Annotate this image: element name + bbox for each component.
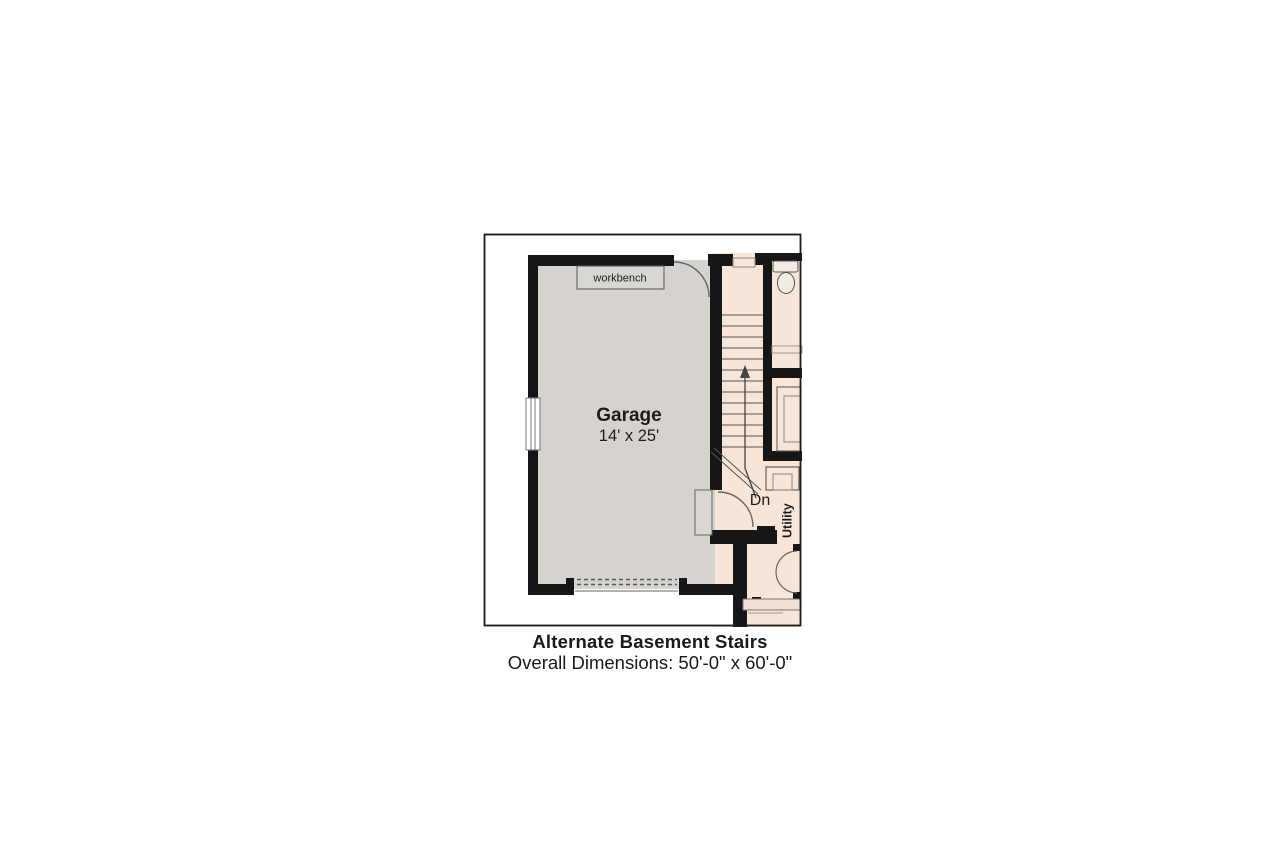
utility-label: Utility [781, 503, 795, 538]
wall-stair-right [763, 253, 772, 461]
wall-room-bottom [763, 451, 802, 461]
wall-left-upper [528, 255, 538, 398]
wall-bath-top [772, 253, 802, 261]
wall-hall-jog [710, 530, 777, 544]
exterior-patch [710, 595, 733, 626]
floor-plan: workbench [483, 233, 804, 628]
door-casing-garage [695, 490, 712, 535]
workbench-label: workbench [592, 273, 646, 285]
wall-top [528, 255, 674, 266]
wall-bottom-right [684, 584, 733, 595]
garage-door-jamb-right [679, 578, 687, 595]
page: workbench [0, 0, 1280, 853]
wall-lower-vertical [733, 544, 747, 627]
plan-title: Alternate Basement Stairs [450, 631, 850, 652]
wall-hall-bump [757, 526, 775, 532]
garage-dimensions-label: 14' x 25' [599, 427, 659, 445]
wall-garage-right [710, 255, 722, 490]
wall-bottom-left [528, 584, 568, 595]
wall-left-lower [528, 450, 538, 595]
caption: Alternate Basement Stairs Overall Dimens… [450, 631, 850, 673]
stair-top-opening [733, 258, 755, 267]
garage-door-jamb-left [566, 578, 574, 595]
window [526, 398, 540, 450]
wall-bath-bottom [763, 368, 802, 378]
garage-label: Garage [596, 405, 661, 426]
interior-floor [710, 253, 800, 627]
plan-overall-dimensions: Overall Dimensions: 50'-0" x 60'-0" [450, 652, 850, 673]
stairs-dn-label: Dn [750, 492, 770, 509]
